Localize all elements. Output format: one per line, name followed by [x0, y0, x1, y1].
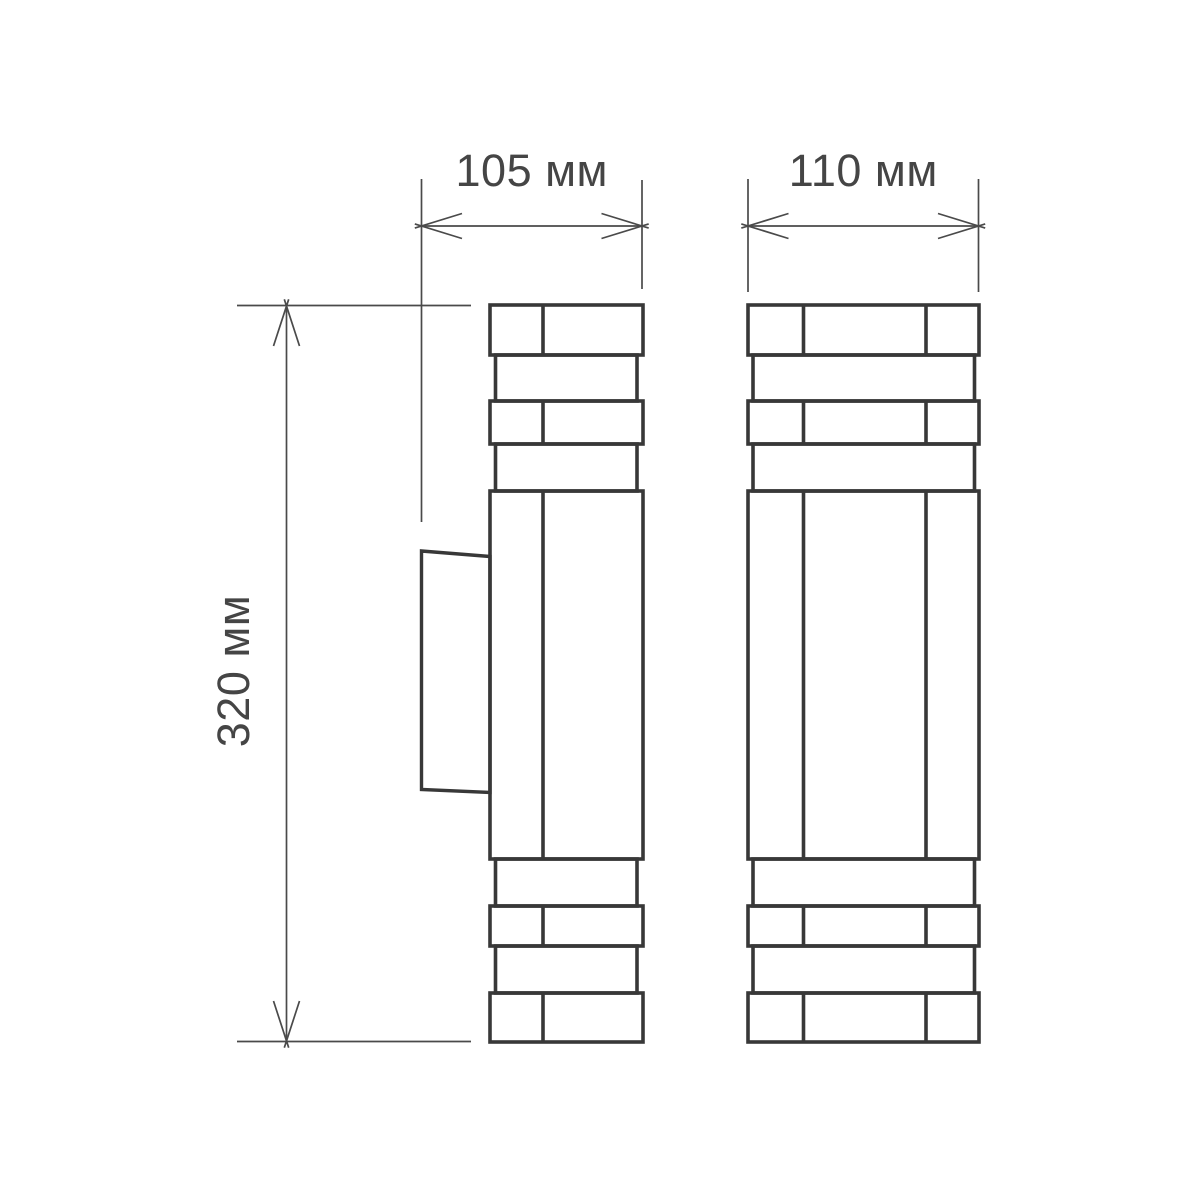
side-slat-bottom-1: [490, 906, 643, 946]
side-recess-bottom-2: [496, 946, 638, 993]
front-recess-bottom-2: [753, 946, 975, 993]
bracket-outline: [422, 551, 491, 793]
front-view-lamp: [748, 305, 979, 1042]
side-main-body: [490, 491, 643, 859]
side-slat-bottom-2: [490, 993, 643, 1042]
front-slat-bottom-1: [748, 906, 979, 946]
dimension-label-front-width: 110 мм: [789, 145, 938, 196]
dimension-label-side-width: 105 мм: [456, 145, 608, 196]
front-recess-bottom-1: [753, 859, 975, 906]
side-slat-top-1: [490, 305, 643, 355]
dimension-label-height: 320 мм: [208, 595, 259, 747]
lamp-dimension-drawing: 105 мм 110 мм 320 мм: [0, 0, 1199, 1199]
dimension-front-width: 110 мм: [741, 145, 985, 292]
front-recess-top-2: [753, 444, 975, 491]
wall-mount-bracket: [422, 551, 491, 793]
dimension-side-width: 105 мм: [415, 145, 649, 522]
side-recess-top-2: [496, 444, 638, 491]
side-recess-top-1: [496, 355, 638, 401]
side-recess-bottom-1: [496, 859, 638, 906]
front-slat-top-2: [748, 401, 979, 444]
technical-drawing-canvas: 105 мм 110 мм 320 мм: [0, 0, 1199, 1199]
front-main-body: [748, 491, 979, 859]
front-recess-top-1: [753, 355, 975, 401]
front-slat-top-1: [748, 305, 979, 355]
side-slat-top-2: [490, 401, 643, 444]
side-view-lamp: [490, 305, 643, 1042]
front-slat-bottom-2: [748, 993, 979, 1042]
